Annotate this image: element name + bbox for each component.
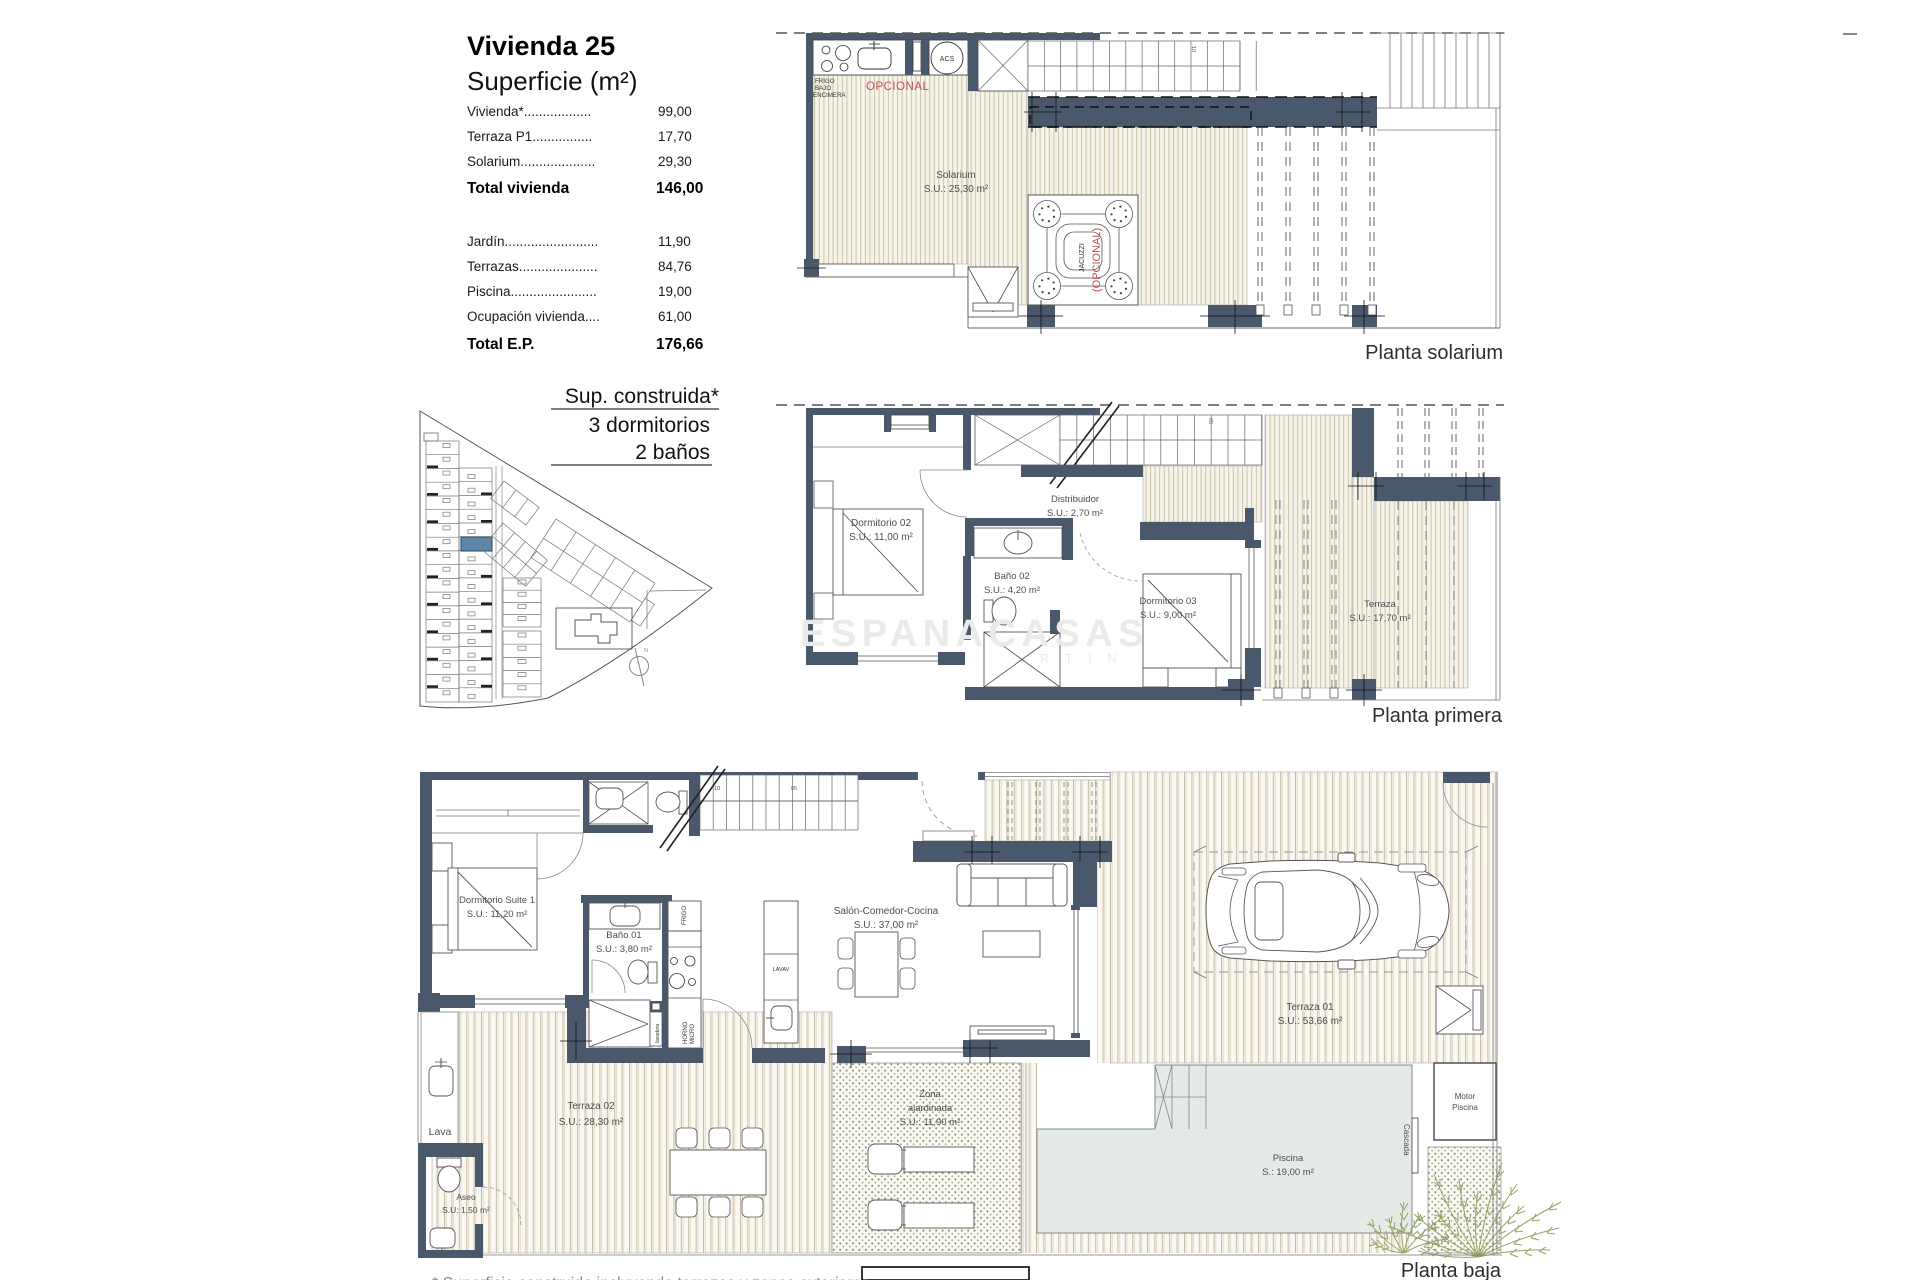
svg-text:Terraza 01: Terraza 01: [1286, 1002, 1334, 1013]
svg-text:Terraza 02: Terraza 02: [567, 1101, 615, 1112]
svg-text:Aseo: Aseo: [456, 1192, 476, 1202]
svg-text:Terrazas.....................: Terrazas.....................: [467, 259, 598, 274]
svg-text:17,70: 17,70: [658, 129, 692, 144]
svg-text:Jardín........................: Jardín.........................: [467, 234, 598, 249]
svg-text:ESPANACASAS: ESPANACASAS: [800, 613, 1149, 655]
svg-text:3 dormitorios: 3 dormitorios: [589, 414, 710, 437]
svg-text:Dormitorio 02: Dormitorio 02: [851, 518, 911, 529]
svg-text:Piscina.......................: Piscina.......................: [467, 284, 597, 299]
svg-text:Planta baja: Planta baja: [1401, 1260, 1502, 1280]
svg-text:Terraza: Terraza: [1364, 599, 1396, 610]
svg-text:S.U.: 53,66 m²: S.U.: 53,66 m²: [1278, 1016, 1343, 1027]
svg-text:146,00: 146,00: [656, 180, 703, 197]
svg-text:S.U.: 3,80 m²: S.U.: 3,80 m²: [596, 944, 652, 955]
svg-text:61,00: 61,00: [658, 309, 692, 324]
svg-text:MICRO: MICRO: [690, 1024, 696, 1044]
svg-text:Sup. construida*: Sup. construida*: [565, 385, 719, 408]
svg-text:ajardinada: ajardinada: [908, 1103, 953, 1114]
svg-text:10: 10: [714, 786, 720, 792]
svg-text:S.U.: 11,90 m²: S.U.: 11,90 m²: [900, 1117, 961, 1128]
svg-text:S.U.: 11,20 m²: S.U.: 11,20 m²: [467, 909, 528, 920]
svg-text:99,00: 99,00: [658, 104, 692, 119]
svg-text:29,30: 29,30: [658, 154, 692, 169]
svg-text:Baño 02: Baño 02: [994, 571, 1029, 582]
svg-text:Ocupación vivienda....: Ocupación vivienda....: [467, 309, 600, 324]
svg-text:S.: 19,00 m²: S.: 19,00 m²: [1262, 1167, 1314, 1178]
svg-text:S.U.: 4,20 m²: S.U.: 4,20 m²: [984, 585, 1040, 596]
svg-text:FRIGO: FRIGO: [682, 906, 688, 925]
svg-text:* Superficie construida incluy: * Superficie construida incluyendo terra…: [432, 1275, 870, 1280]
svg-text:ENCIMERA: ENCIMERA: [813, 92, 847, 99]
svg-text:Superficie (m²): Superficie (m²): [467, 66, 637, 96]
svg-text:JACUZZI: JACUZZI: [1079, 243, 1086, 272]
svg-text:lavadora: lavadora: [655, 1024, 661, 1043]
svg-text:N: N: [644, 648, 648, 654]
svg-text:BAJO: BAJO: [815, 85, 831, 92]
svg-text:(OPCIONAL): (OPCIONAL): [1091, 228, 1103, 292]
svg-text:R T I N: R T I N: [1040, 651, 1123, 666]
svg-text:Motor: Motor: [1455, 1092, 1476, 1101]
svg-text:ACS: ACS: [940, 56, 955, 63]
svg-text:2 baños: 2 baños: [635, 441, 710, 464]
svg-text:Baño 01: Baño 01: [606, 930, 641, 941]
svg-text:Piscina: Piscina: [1452, 1103, 1478, 1112]
svg-text:FRIGO: FRIGO: [815, 78, 835, 85]
svg-text:Terraza P1................: Terraza P1................: [467, 129, 592, 144]
svg-text:Dormitorio Suite 1: Dormitorio Suite 1: [459, 895, 535, 906]
svg-text:05: 05: [791, 786, 797, 792]
svg-text:10: 10: [1190, 46, 1196, 52]
svg-text:Total E.P.: Total E.P.: [467, 336, 534, 353]
svg-text:Zona: Zona: [919, 1089, 941, 1100]
svg-text:S.U.: 37,00 m²: S.U.: 37,00 m²: [854, 920, 919, 931]
svg-text:Piscina: Piscina: [1273, 1153, 1304, 1164]
svg-text:Planta solarium: Planta solarium: [1365, 342, 1503, 364]
svg-text:S.U: 1,50 m²: S.U: 1,50 m²: [442, 1205, 490, 1215]
svg-text:84,76: 84,76: [658, 259, 692, 274]
svg-text:05: 05: [1207, 418, 1213, 424]
svg-text:S.U.: 25,30 m²: S.U.: 25,30 m²: [924, 184, 989, 195]
svg-text:11,90: 11,90: [658, 234, 691, 249]
svg-text:176,66: 176,66: [656, 336, 704, 353]
svg-text:Solarium....................: Solarium....................: [467, 154, 595, 169]
svg-text:Lava: Lava: [429, 1126, 452, 1138]
svg-text:S.U.: 2,70 m²: S.U.: 2,70 m²: [1047, 508, 1103, 519]
svg-text:Salón-Comedor-Cocina: Salón-Comedor-Cocina: [834, 906, 939, 917]
svg-text:Vivienda*..................: Vivienda*..................: [467, 104, 591, 119]
svg-text:Distribuidor: Distribuidor: [1051, 494, 1099, 505]
svg-text:Solarium: Solarium: [936, 170, 975, 181]
svg-text:LAVAV: LAVAV: [773, 967, 790, 973]
svg-text:Total vivienda: Total vivienda: [467, 180, 570, 197]
svg-text:S.U.: 11,00 m²: S.U.: 11,00 m²: [849, 532, 913, 543]
svg-text:Vivienda 25: Vivienda 25: [467, 31, 615, 61]
svg-text:S.U.: 17,70 m²: S.U.: 17,70 m²: [1349, 613, 1410, 624]
svg-text:Dormitorio 03: Dormitorio 03: [1139, 596, 1196, 607]
svg-text:OPCIONAL: OPCIONAL: [866, 81, 930, 93]
svg-text:Planta primera: Planta primera: [1372, 705, 1503, 727]
svg-text:S.U.: 28,30 m²: S.U.: 28,30 m²: [559, 1117, 624, 1128]
svg-text:HORNO: HORNO: [683, 1021, 689, 1044]
svg-text:Cascada: Cascada: [1402, 1124, 1411, 1156]
svg-text:19,00: 19,00: [658, 284, 692, 299]
